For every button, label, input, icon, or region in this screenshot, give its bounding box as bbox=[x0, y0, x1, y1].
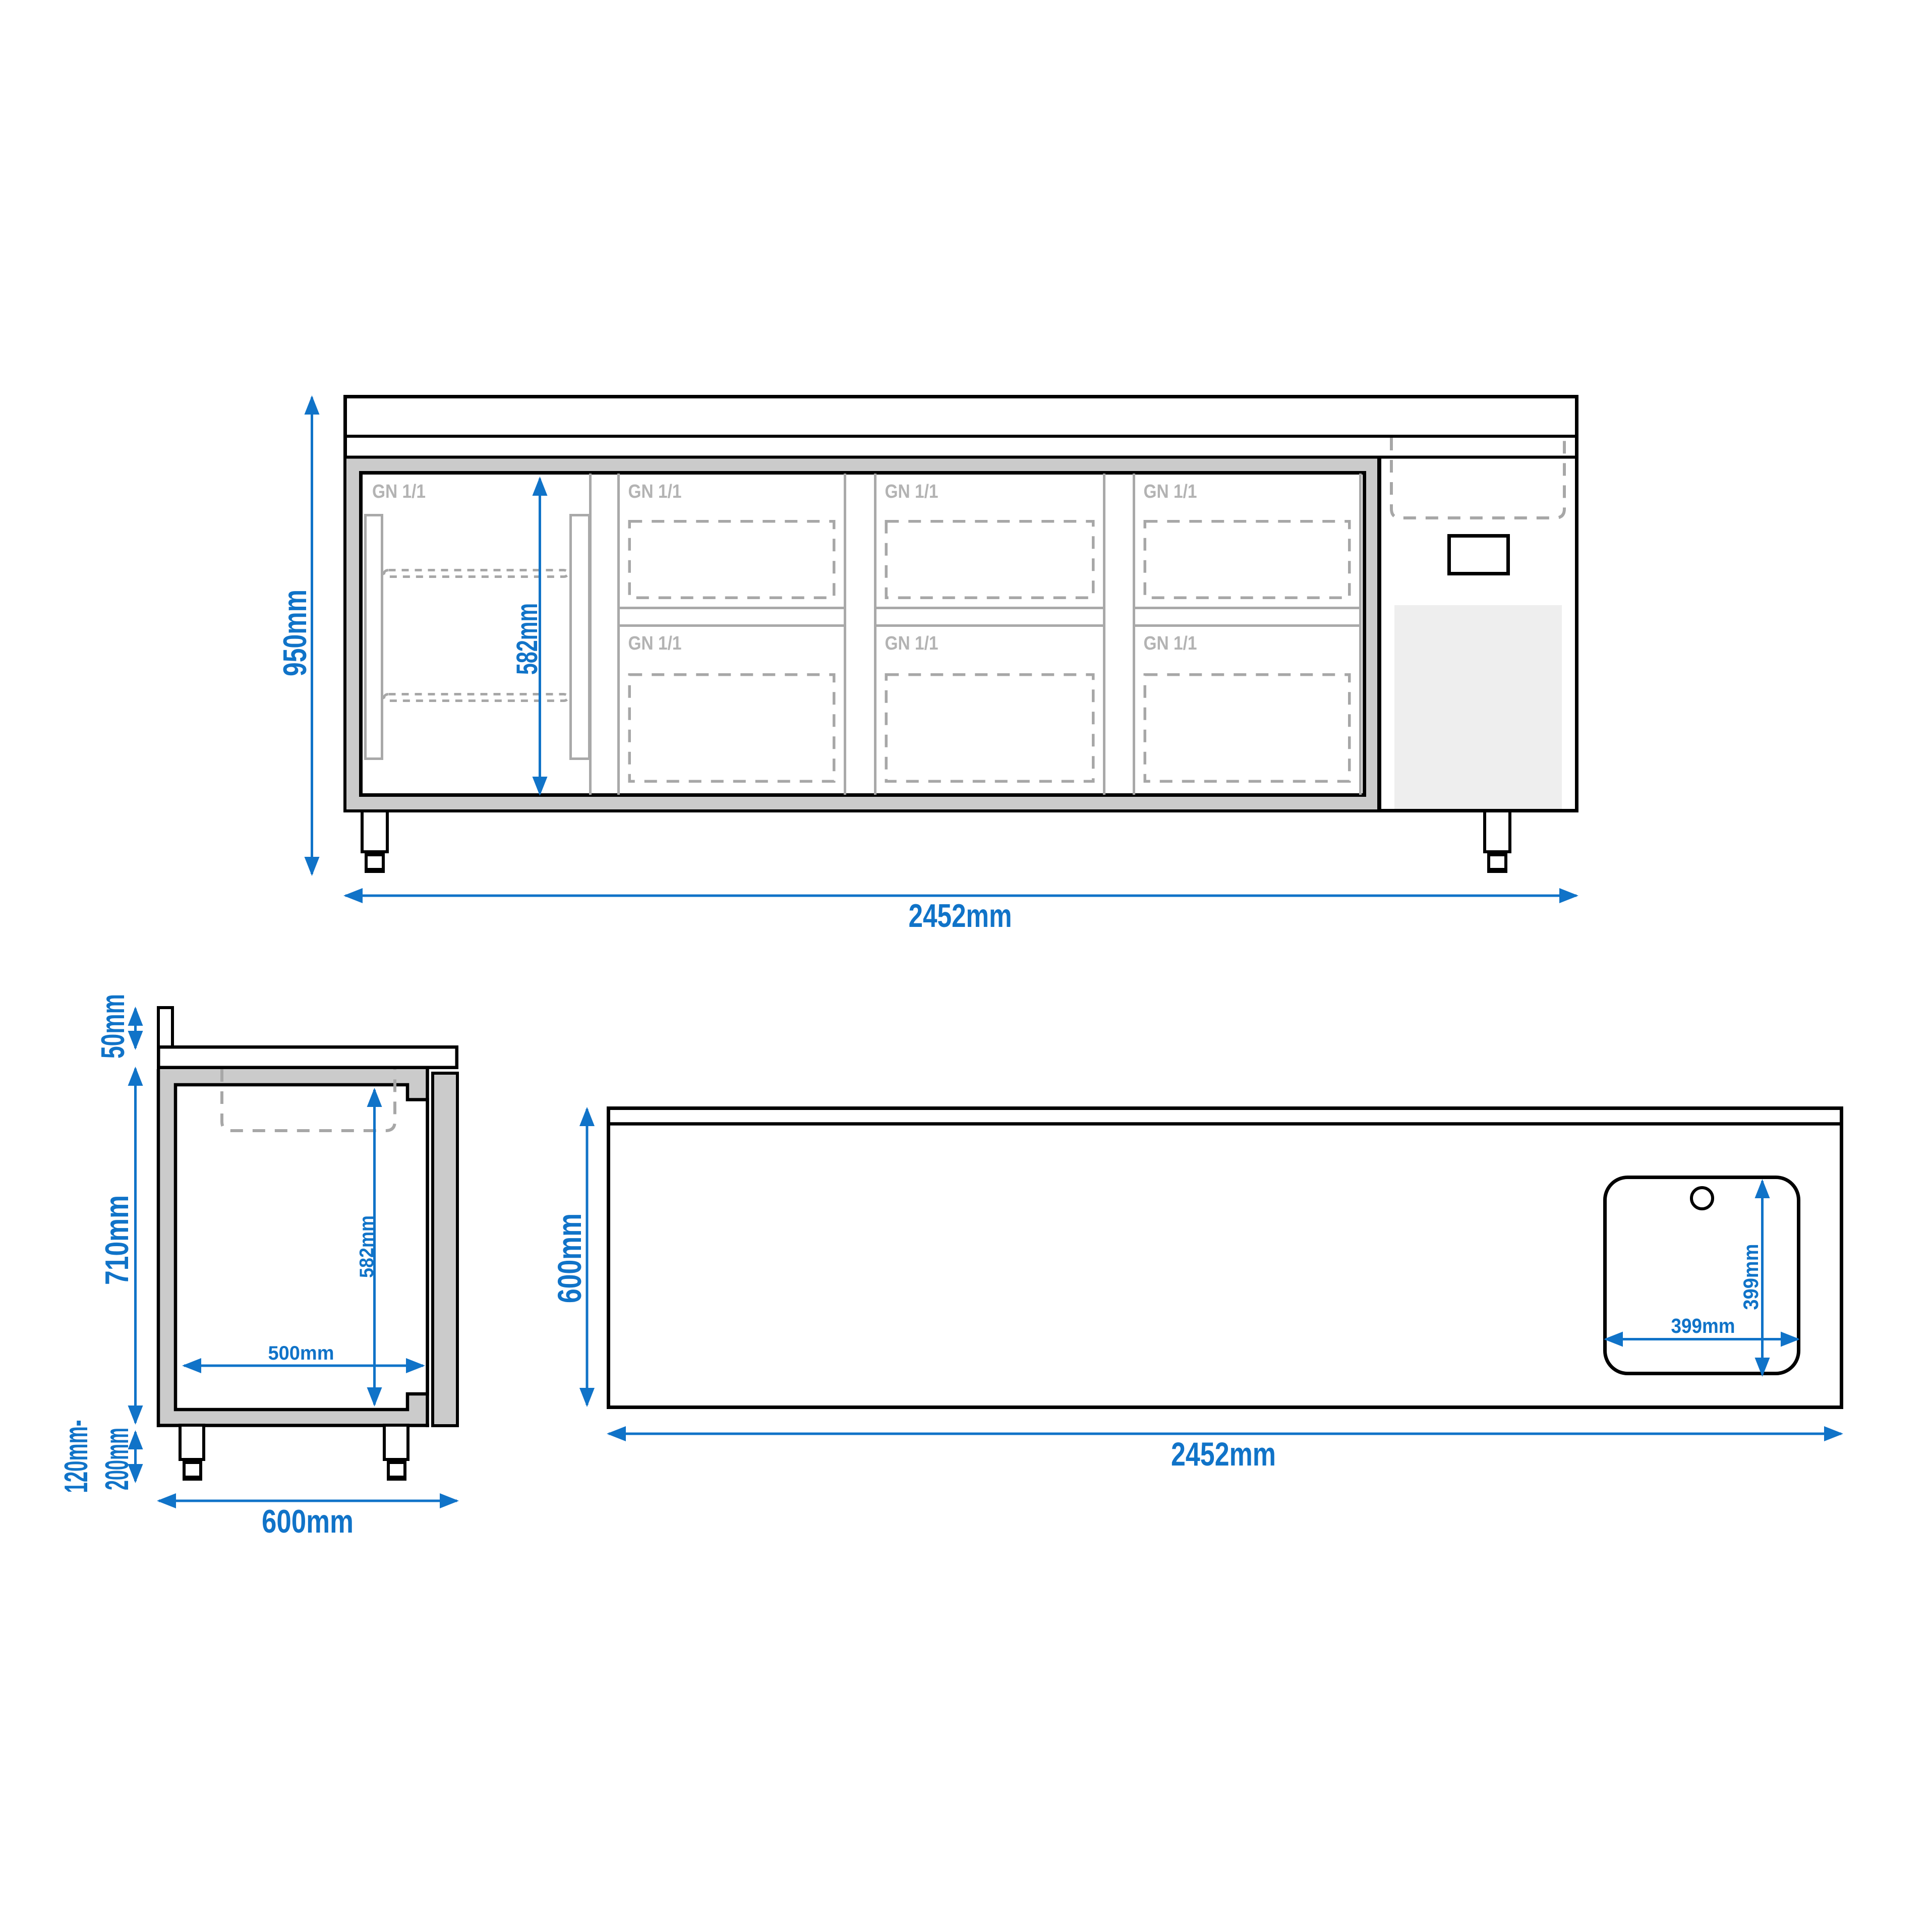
svg-text:GN 1/1: GN 1/1 bbox=[1144, 633, 1197, 654]
svg-text:GN 1/1: GN 1/1 bbox=[628, 481, 682, 502]
svg-text:200mm: 200mm bbox=[98, 1428, 135, 1490]
svg-text:2452mm: 2452mm bbox=[1171, 1435, 1276, 1473]
svg-text:600mm: 600mm bbox=[262, 1503, 354, 1540]
svg-text:GN 1/1: GN 1/1 bbox=[372, 481, 426, 502]
svg-text:399mm: 399mm bbox=[1739, 1244, 1763, 1310]
svg-text:600mm: 600mm bbox=[551, 1213, 588, 1303]
svg-text:582mm: 582mm bbox=[356, 1215, 378, 1278]
svg-text:950mm: 950mm bbox=[276, 590, 313, 676]
svg-text:GN 1/1: GN 1/1 bbox=[885, 633, 939, 654]
svg-text:500mm: 500mm bbox=[268, 1342, 334, 1364]
svg-text:710mm: 710mm bbox=[98, 1195, 135, 1285]
svg-text:582mm: 582mm bbox=[511, 603, 544, 675]
svg-text:GN 1/1: GN 1/1 bbox=[885, 481, 939, 502]
svg-text:50mm: 50mm bbox=[94, 994, 131, 1059]
svg-text:399mm: 399mm bbox=[1671, 1314, 1735, 1337]
svg-text:GN 1/1: GN 1/1 bbox=[628, 633, 682, 654]
svg-text:2452mm: 2452mm bbox=[909, 897, 1012, 934]
svg-text:GN 1/1: GN 1/1 bbox=[1144, 481, 1197, 502]
svg-text:120mm-: 120mm- bbox=[57, 1420, 94, 1493]
